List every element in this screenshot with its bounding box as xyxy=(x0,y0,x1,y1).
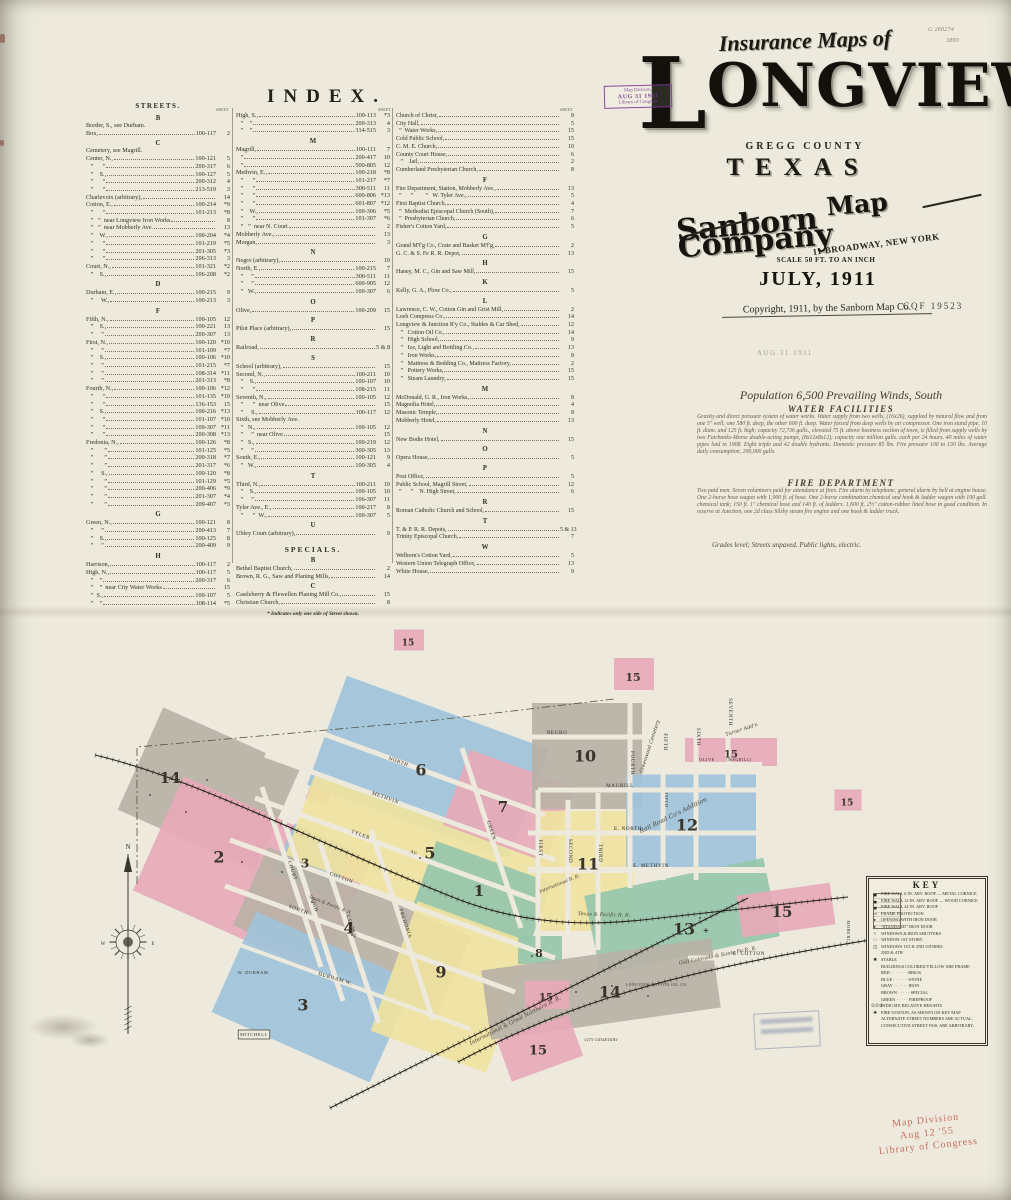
index-entry-name: Magnolia Hotel, xyxy=(396,402,435,409)
dot-leader xyxy=(105,331,195,336)
dot-leader xyxy=(109,470,195,475)
district-number: 3 xyxy=(297,996,308,1015)
index-entry-name: Fisher's Cotton Yard, xyxy=(396,224,446,231)
index-entry-sheet: 5 & 13 xyxy=(560,527,574,534)
index-entry: ” S., 100-219 12 xyxy=(236,439,390,447)
dot-leader xyxy=(446,313,559,318)
index-entry-sheet: 5 xyxy=(560,474,574,481)
index-letter-heading: L xyxy=(396,298,574,305)
index-entry-name: Bethel Baptist Church, xyxy=(236,566,293,573)
index-entry-sheet: 6 xyxy=(216,164,230,171)
dot-leader xyxy=(107,408,194,413)
index-entry: ” ” 101-109 *7 xyxy=(86,347,230,355)
index-entry: ” ” N. High Street, 6 xyxy=(396,488,574,496)
dot-leader xyxy=(257,288,354,293)
index-entry: Ubley Court (arbitrary), 9 xyxy=(236,530,390,538)
index-entry: ” ” 201-317 *6 xyxy=(86,462,230,470)
index-entry-name: Fourth, N., xyxy=(86,386,113,393)
index-entry-name: ” Cotton Oil Co., xyxy=(396,330,445,337)
index-letter-heading: D xyxy=(86,281,230,288)
key-row: ALTERNATE STREET NUMBERS ARE ACTUAL, xyxy=(871,1016,983,1023)
dot-leader xyxy=(257,146,355,151)
key-row: BROWN · · · · · SPECIAL xyxy=(871,990,983,997)
index-entry-sheet: 15 xyxy=(560,508,574,515)
index-entry-name: ” ” xyxy=(86,528,104,535)
index-entry-sheet: *2 xyxy=(216,272,230,279)
index-entry-sheet: *10 xyxy=(216,355,230,362)
index-entry: ” ” 108-314 *11 xyxy=(86,370,230,378)
index-entry-range: 100-218 xyxy=(355,170,376,177)
dot-leader xyxy=(255,280,355,285)
index-letter-heading: G xyxy=(86,511,230,518)
index-entry-range: 100-221 xyxy=(195,324,216,331)
index-entry-sheet: 13 xyxy=(560,345,574,352)
index-entry: ” Iron Works, 8 xyxy=(396,352,574,360)
index-entry-name: ” ” xyxy=(86,432,105,439)
index-entry-range: 100-106 xyxy=(195,355,216,362)
dot-leader xyxy=(266,371,355,376)
index-entry-sheet: 12 xyxy=(376,440,390,447)
street-label: MAGRILL xyxy=(606,783,634,789)
index-entry: ” W., 100-306 *5 xyxy=(236,208,390,216)
index-entry-name: Tyler Ave., E., xyxy=(236,505,272,512)
dot-leader xyxy=(261,454,354,459)
index-entry-name: Fredonia, N., xyxy=(86,440,119,447)
dot-leader xyxy=(256,386,354,391)
index-entry: ” ” near Mobberly Ave. 13 xyxy=(86,224,230,232)
index-letter-heading: F xyxy=(396,177,574,184)
street-label: (MAGRILL) xyxy=(726,758,751,762)
index-letter-heading: H xyxy=(396,260,574,267)
index-entry-name: ” Presbyterian Church, xyxy=(396,216,455,223)
index-entry: T. & P. R. R. Depots, 5 & 13 xyxy=(396,526,574,534)
index-entry-name: ” ” xyxy=(236,387,255,394)
index-entry-range: 100-214 xyxy=(195,202,216,209)
index-entry-name: ” S., xyxy=(86,409,106,416)
dot-leader xyxy=(106,209,194,214)
index-entry-range: 201-317 xyxy=(195,463,216,470)
index-entry-name: Olive, xyxy=(236,308,251,315)
index-entry-range: 108-114 xyxy=(196,601,216,608)
index-entry-sheet: 5 xyxy=(216,593,230,600)
dot-leader xyxy=(103,600,194,605)
dot-leader xyxy=(437,417,559,422)
county-label: GREGG COUNTY xyxy=(700,141,910,152)
building-dot xyxy=(419,857,421,859)
index-entry-range: 100-125 xyxy=(195,536,216,543)
index-entry-range: 100-307 xyxy=(355,289,376,296)
index-entry: ” ” 200-318 *7 xyxy=(86,454,230,462)
population-line: Population 6,500 Prevailing Winds, South xyxy=(698,388,984,403)
index-entry-range: 100-111 xyxy=(356,147,376,154)
index-entry-range: 200-409 xyxy=(195,543,216,550)
index-entry: ” ” 101-213 *8 xyxy=(86,209,230,217)
received-date-stamp: AUG 31 1911 xyxy=(757,349,813,357)
index-entry-name: ” ” xyxy=(236,121,252,128)
index-entry-name: ” ” xyxy=(86,402,105,409)
index-entry-sheet: *11 xyxy=(216,425,230,432)
index-entry-range: 100-106 xyxy=(195,386,216,393)
index-entry-range: 100-120 xyxy=(195,471,216,478)
index-entry-name: ” ” xyxy=(86,210,105,217)
dot-leader xyxy=(99,130,195,135)
index-entry: ” ” 101-129 *5 xyxy=(86,478,230,486)
index-entry-sheet: 6 xyxy=(376,289,390,296)
index-entry-range: 600-806 xyxy=(355,193,376,200)
index-entry-range: 100-117 xyxy=(196,131,216,138)
index-entry-sheet: 5 xyxy=(560,288,574,295)
street-label: E. METHVIN xyxy=(633,863,669,869)
index-entry-sheet: 3 xyxy=(216,298,230,305)
index-entry-name: ” ” xyxy=(236,201,255,208)
index-entry-sheet: 2 xyxy=(376,566,390,573)
index-entry-sheet: 4 xyxy=(216,179,230,186)
index-entry: ” S., 100-221 13 xyxy=(86,323,230,331)
index-entry-name: ” ” xyxy=(86,601,102,608)
dot-leader xyxy=(470,394,559,399)
index-entry-name: ” ” xyxy=(86,578,102,585)
dot-leader xyxy=(479,166,559,171)
fire-department-text: Two paid men. Seven volunteers paid for … xyxy=(697,488,987,516)
index-entry: City Hall, 5 xyxy=(396,120,574,128)
index-entry-name: ” W., xyxy=(236,209,258,216)
index-entry-name: ” ” xyxy=(86,486,107,493)
index-letter-heading: H xyxy=(86,553,230,560)
dot-leader xyxy=(110,316,195,321)
dot-leader xyxy=(244,162,354,167)
index-entry-range: 200-313 xyxy=(355,121,376,128)
index-entry: ” Jail, 2 xyxy=(396,158,574,166)
index-entry-sheet: *5 xyxy=(216,448,230,455)
index-entry: ” ” 300-305 13 xyxy=(236,447,390,455)
index-entry: ” ” 600-905 12 xyxy=(236,280,390,288)
index-entry-name: ” S., xyxy=(86,324,106,331)
index-entry-sheet: 12 xyxy=(376,395,390,402)
index-entry-name: Box, xyxy=(86,131,98,138)
index-entry-range: 101-125 xyxy=(195,448,216,455)
index-entry-name: ” W., xyxy=(236,463,256,470)
index-letter-heading: K xyxy=(396,279,574,286)
index-entry-range: 100-107 xyxy=(195,593,216,600)
index-entry-range: 100-121 xyxy=(195,156,216,163)
index-entry-name: ” ” xyxy=(86,371,104,378)
index-letter-heading: B xyxy=(86,115,230,122)
dot-leader xyxy=(259,409,355,414)
dot-leader xyxy=(447,200,559,205)
index-entry-name: C. M. E. Church, xyxy=(396,144,437,151)
dot-leader xyxy=(171,217,215,222)
index-entry: Post Office, 5 xyxy=(396,473,574,481)
index-entry-name: ” S., xyxy=(236,379,256,386)
index-entry-range: 106-208 xyxy=(195,272,216,279)
index-entry-sheet: 13 xyxy=(560,418,574,425)
edition-date: JULY, 1911 xyxy=(738,268,898,291)
dot-leader xyxy=(105,527,195,532)
index-entry-name: ” ” xyxy=(86,363,104,370)
index-entry-sheet: 2 xyxy=(560,361,574,368)
index-entry-name: ” ” xyxy=(236,186,255,193)
index-entry-sheet: 5 xyxy=(560,553,574,560)
key-label: WINDOWS & IRON SHUTTERS xyxy=(881,931,941,938)
dot-leader xyxy=(273,504,355,509)
dot-leader xyxy=(504,306,559,311)
index-entry-sheet: *3 xyxy=(216,249,230,256)
index-entry-range: 100-121 xyxy=(195,520,216,527)
index-entry-range: 100-216 xyxy=(195,409,216,416)
index-entry-name: Mobberly Ave., xyxy=(236,232,275,239)
street-label: MITCHELL xyxy=(240,1032,268,1037)
index-entry: Pilot Place (arbitrary), 15 xyxy=(236,325,390,333)
district-number: 3 xyxy=(301,857,309,871)
index-entry-sheet: 15 xyxy=(376,402,390,409)
index-entry-sheet: 13 xyxy=(560,186,574,193)
index-letter-heading: R xyxy=(396,499,574,506)
index-entry-name: ” ” xyxy=(236,178,255,185)
dot-leader xyxy=(106,424,194,429)
index-entry-range: 100-120 xyxy=(195,340,216,347)
index-entry-sheet: 15 xyxy=(560,376,574,383)
index-entry: New Bodie Hotel, 15 xyxy=(396,436,574,444)
index-entry-name: New Bodie Hotel, xyxy=(396,437,440,444)
dot-leader xyxy=(108,485,194,490)
key-mini-diagram xyxy=(873,893,901,929)
dot-leader xyxy=(477,560,559,565)
index-entry: Opera House, 5 xyxy=(396,454,574,462)
index-letter-heading: N xyxy=(396,428,574,435)
index-entry: Welborn's Cotton Yard, 5 xyxy=(396,552,574,560)
index-entry: ” ” 206-313 3 xyxy=(86,255,230,263)
index-entry: ” ” 601-807 *12 xyxy=(236,200,390,208)
index-entry-sheet: 11 xyxy=(376,186,390,193)
index-entry-name: Kelly, G. A., Plow Co., xyxy=(396,288,452,295)
index-entry-name: Western Union Telegraph Office, xyxy=(396,561,476,568)
index-entry-name: ” W., xyxy=(86,233,108,240)
index-entry-name: G. C. & S. Fe R. R. Depot, xyxy=(396,251,461,258)
index-entry-sheet: 10 xyxy=(376,258,390,265)
district-number: 8 xyxy=(535,947,543,960)
dot-leader xyxy=(281,257,375,262)
index-entry-range: 101-219 xyxy=(195,241,216,248)
index-entry: ” W., 100-204 *4 xyxy=(86,232,230,240)
index-entry: High, S., 109-113 *3 xyxy=(236,112,390,120)
fire-department-heading: FIRE DEPARTMENT xyxy=(698,478,984,488)
index-entry-sheet: 8 xyxy=(376,600,390,607)
index-entry-sheet: 12 xyxy=(216,317,230,324)
dot-leader xyxy=(257,488,354,493)
dot-leader xyxy=(108,493,194,498)
index-entry: White House, 9 xyxy=(396,568,574,576)
index-entry: Fisher's Cotton Yard, 5 xyxy=(396,223,574,231)
dot-leader xyxy=(495,242,559,247)
key-label: WINDOW 1ST STORY xyxy=(881,937,923,944)
index-entry-sheet: 4 xyxy=(376,121,390,128)
index-entry-name: Haney, M. C., Gin and Saw Mill, xyxy=(396,269,475,276)
index-entry-range: 100-211 xyxy=(356,482,376,489)
key-label: CONSECUTIVE STREET NOS. ARE ARBITRARY. xyxy=(881,1023,974,1030)
index-entry: Castleberry & Flewellen Planing Mill Co.… xyxy=(236,591,390,599)
index-entry-name: ” ” near Olive xyxy=(236,432,283,439)
street-label: MOBERLY xyxy=(846,920,851,945)
dot-leader xyxy=(445,135,559,140)
index-entry-sheet: 3 xyxy=(216,256,230,263)
index-entry-range: 200-318 xyxy=(195,455,216,462)
dot-leader xyxy=(459,533,559,538)
index-entry-name: ” ” near Olive xyxy=(236,402,284,409)
index-entry-name: ” ” xyxy=(86,455,107,462)
index-entry-sheet: 2 xyxy=(560,159,574,166)
index-entry-name: ” W., xyxy=(86,298,109,305)
index-entry-name: ” ” ” W. Tyler Ave., xyxy=(396,193,467,200)
index-entry-name: Cold Public School, xyxy=(396,136,444,143)
faint-stamp xyxy=(753,1010,821,1049)
index-entry-sheet: *10 xyxy=(216,394,230,401)
index-letter-heading: C xyxy=(86,140,230,147)
index-entry-name: ” ” xyxy=(86,332,104,339)
index-entry-sheet: 10 xyxy=(376,489,390,496)
index-entry: Fredonia, N., 100-126 *8 xyxy=(86,439,230,447)
index-entry-name: Pilot Place (arbitrary), xyxy=(236,326,291,333)
index-entry-sheet: 15 xyxy=(560,269,574,276)
index-entry-name: Ubley Court (arbitrary), xyxy=(236,531,295,538)
index-entry-sheet: 12 xyxy=(376,163,390,170)
index-entry-sheet: 14 xyxy=(560,314,574,321)
index-entry-name: First, N., xyxy=(86,340,108,347)
index-entry: ” ” 200-308 *13 xyxy=(86,431,230,439)
index-entry-name: Magrill, xyxy=(236,147,256,154)
index-entry: ” Steam Laundry, 15 xyxy=(396,375,574,383)
index-entry: Public School, Magrill Street, 12 xyxy=(396,481,574,489)
dot-leader xyxy=(117,289,194,294)
district-number: 15 xyxy=(841,799,854,809)
index-entry-range: 200-413 xyxy=(195,528,216,535)
index-entry: Trinity Episcopal Church, 7 xyxy=(396,533,574,541)
dot-leader xyxy=(342,591,375,596)
index-letter-heading: T xyxy=(236,473,390,480)
dot-leader xyxy=(453,552,559,557)
index-entry: Charlevoix (arbitrary), 14 xyxy=(86,194,230,202)
index-column-divider xyxy=(232,108,233,563)
index-entry-range: 100-211 xyxy=(356,372,376,379)
index-entry: Magrill, 100-111 7 xyxy=(236,146,390,154)
street-label: SIXTH xyxy=(695,728,701,746)
dot-leader xyxy=(281,599,375,604)
index-entry-name: ” S., xyxy=(86,536,106,543)
dot-leader xyxy=(107,354,194,359)
map-annotation: CITY CEMETERY xyxy=(584,1037,618,1042)
index-entry-name: Morgan, xyxy=(236,240,257,247)
index-entry: Loeb Compress Co., 14 xyxy=(396,313,574,321)
dot-leader xyxy=(110,561,194,566)
index-entry-sheet: 8 xyxy=(376,505,390,512)
index-entry-sheet: 11 xyxy=(376,497,390,504)
index-entry: ” ” 108-114 *5 xyxy=(86,600,230,608)
index-entry: ” W., 100-305 4 xyxy=(236,462,390,470)
index-entry: Christian Church, 8 xyxy=(236,599,390,607)
index-entry: School (arbitrary), 15 xyxy=(236,363,390,371)
dot-leader xyxy=(108,447,194,452)
index-entry-range: 101-109 xyxy=(195,348,216,355)
index-entry-sheet: 15 xyxy=(376,308,390,315)
index-entry-name: Border, S., see Durham. xyxy=(86,123,145,130)
index-letter-heading: F xyxy=(86,308,230,315)
index-entry-sheet: *7 xyxy=(216,455,230,462)
dot-leader xyxy=(259,208,355,213)
index-entry-sheet: 8 xyxy=(560,410,574,417)
dot-leader xyxy=(257,378,354,383)
key-label: INDICATE RELATIVE HEIGHTS xyxy=(881,1003,942,1010)
index-entry-sheet: 8 xyxy=(216,536,230,543)
index-entry-sheet: *11 xyxy=(216,371,230,378)
index-entry: Fourth, N., 100-106 *12 xyxy=(86,385,230,393)
dot-leader xyxy=(456,215,559,220)
index-entry: Seventh, N., 100-105 12 xyxy=(236,394,390,402)
index-entry-name: Roman Catholic Church and School, xyxy=(396,508,484,515)
fire-station-cross: + xyxy=(703,926,709,937)
index-entry-name: Negro (arbitrary), xyxy=(236,258,280,265)
index-entry-sheet: *7 xyxy=(216,348,230,355)
index-letter-heading: M xyxy=(236,138,390,145)
dot-leader xyxy=(296,530,375,535)
dot-leader xyxy=(255,273,355,278)
dot-leader xyxy=(426,473,559,478)
index-entry: North, E., 100-215 7 xyxy=(236,265,390,273)
dot-leader xyxy=(497,185,559,190)
index-entry-sheet: 5 xyxy=(560,121,574,128)
index-entry: Mobberly Hotel, 13 xyxy=(396,417,574,425)
index-entry-sheet: *5 xyxy=(216,241,230,248)
index-entry-range: 108-314 xyxy=(195,371,216,378)
index-entry: Harrison, 100-117 2 xyxy=(86,561,230,569)
index-entry-sheet: 4 xyxy=(560,201,574,208)
dot-leader xyxy=(475,344,559,349)
index-entry-name: ” Mattress & Bedding Co., Mattress Facto… xyxy=(396,361,511,368)
index-entry-sheet: 9 xyxy=(216,290,230,297)
key-symbol: ◫ xyxy=(871,944,879,951)
index-entry-sheet: *8 xyxy=(376,170,390,177)
dot-leader xyxy=(268,512,355,517)
index-entry-sheet: *10 xyxy=(216,340,230,347)
index-entry-range: 200-417 xyxy=(355,155,376,162)
index-entry-sheet: 12 xyxy=(376,281,390,288)
dot-leader xyxy=(420,158,559,163)
index-entry-sheet: 2 xyxy=(216,562,230,569)
index-entry-sheet: 2 xyxy=(560,243,574,250)
key-row: ≡ WINDOWS & IRON SHUTTERS xyxy=(871,931,983,938)
dot-leader xyxy=(106,178,194,183)
index-entry: ” ” 201-307 *4 xyxy=(86,493,230,501)
dot-leader xyxy=(107,535,194,540)
stamp-line: Library of Congress xyxy=(606,99,670,106)
dot-leader xyxy=(259,112,355,117)
district-number: 15 xyxy=(772,903,793,921)
index-entry-name: ” Pottery Works, xyxy=(396,368,443,375)
index-entry: ” S., 100-120 *8 xyxy=(86,470,230,478)
streets-header: STREETS. xyxy=(86,102,230,110)
index-entry-name: Cemetery, see Magrill. xyxy=(86,148,142,155)
index-entry-sheet: 7 xyxy=(560,209,574,216)
building-dot xyxy=(699,917,701,919)
index-entry-sheet: *12 xyxy=(216,386,230,393)
index-entry: Box, 100-117 2 xyxy=(86,130,230,138)
index-entry: First, N., 100-120 *10 xyxy=(86,339,230,347)
index-letter-heading: N xyxy=(236,249,390,256)
district-number: 15 xyxy=(625,671,640,684)
dot-leader xyxy=(114,155,194,160)
dot-leader xyxy=(252,307,354,312)
index-entry-sheet: 4 xyxy=(560,402,574,409)
index-entry: Durham, E., 100-215 9 xyxy=(86,289,230,297)
index-entry-range: 100-215 xyxy=(355,266,376,273)
